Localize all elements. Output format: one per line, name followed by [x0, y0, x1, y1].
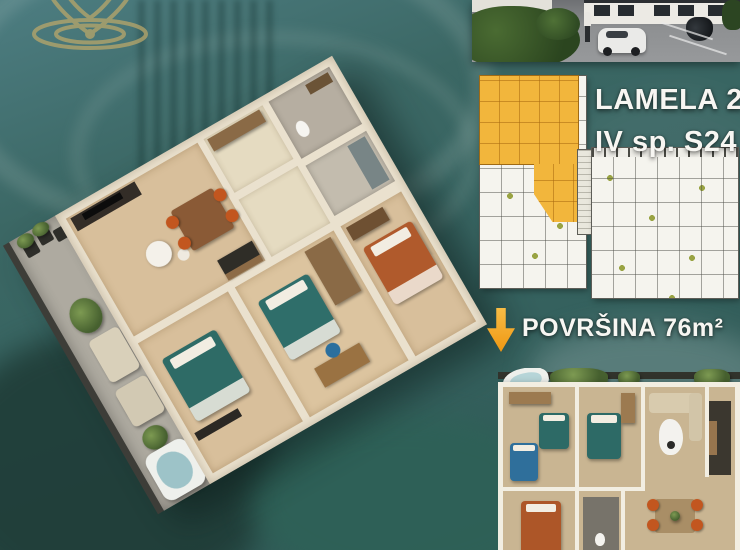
plan2-closet	[621, 393, 635, 423]
plan2-dining-chair	[647, 519, 659, 531]
plan2-bed-orange	[521, 501, 561, 550]
pedestrian	[584, 12, 591, 26]
plan2-dining-chair	[691, 499, 703, 511]
plan2-toilet	[595, 533, 605, 546]
building-roofline	[584, 0, 740, 3]
plan2-wall	[575, 491, 579, 550]
bed-pillow	[526, 504, 556, 513]
building-title: LAMELA 2	[595, 84, 740, 117]
plan2-drain-dot	[667, 441, 675, 449]
building-exterior-photo	[472, 0, 740, 62]
promo-image: LAMELA 2 IV sp. S24 POVRŠINA 76m²	[0, 0, 740, 550]
building-window	[654, 5, 670, 16]
topdown-floor-plan	[498, 368, 740, 550]
bed-pillow	[591, 415, 617, 422]
plan2-wall	[621, 491, 625, 550]
plan2-sofa	[689, 393, 702, 441]
car-wheel	[631, 47, 640, 56]
location-pin-logo-icon	[15, 0, 165, 72]
plan2-bed-teal	[539, 413, 569, 449]
floor-diagram-right-wing	[592, 148, 738, 298]
pedestrian-legs	[585, 26, 590, 42]
plan2-kitchen-wood	[709, 421, 717, 455]
plan2-apartment	[498, 382, 740, 550]
building-window	[618, 5, 634, 16]
plan2-bathtub	[659, 419, 683, 455]
plan2-wall	[705, 387, 709, 477]
plan2-wall	[575, 387, 579, 487]
building-window	[678, 5, 694, 16]
highlighted-unit-s24	[480, 76, 578, 164]
plan2-dining-chair	[647, 499, 659, 511]
terrace-plant	[63, 292, 109, 339]
hedge-right	[722, 0, 740, 30]
plan2-bed-teal	[587, 413, 621, 459]
hedge-center	[536, 8, 580, 40]
down-arrow-icon	[487, 308, 515, 352]
car-windshield	[606, 31, 628, 38]
plan2-wall	[641, 387, 645, 487]
plan2-table-plant	[670, 511, 680, 521]
building-window	[594, 5, 610, 16]
unit-title: IV sp. S24	[595, 126, 737, 159]
bed-pillow	[513, 445, 534, 451]
white-car	[598, 28, 646, 53]
plan2-dining-chair	[691, 519, 703, 531]
plan2-bed-blue	[510, 443, 538, 481]
plan2-wardrobe	[509, 392, 551, 404]
area-label: POVRŠINA 76m²	[522, 314, 723, 343]
plan2-bathroom	[583, 497, 619, 550]
plan2-kitchen	[709, 401, 731, 475]
plan2-dining-table	[655, 499, 695, 533]
car-wheel	[603, 47, 612, 56]
bed-pillow	[543, 415, 566, 421]
